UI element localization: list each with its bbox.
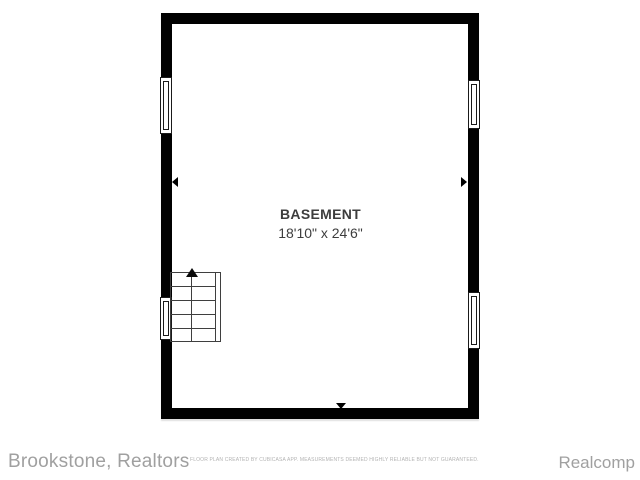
- window-pane: [163, 301, 169, 336]
- wall-marker-bottom-icon: [336, 403, 346, 409]
- window-pane: [471, 296, 477, 345]
- stair-rail-line: [215, 273, 216, 341]
- stair-step: [171, 286, 215, 287]
- footer-bar: Brookstone, Realtors FLOOR PLAN CREATED …: [0, 440, 640, 480]
- brand-text: Brookstone, Realtors: [8, 451, 189, 473]
- room-dimensions: 18'10" x 24'6": [172, 225, 469, 241]
- window-pane: [471, 84, 477, 125]
- floor-plan-canvas: BASEMENT 18'10" x 24'6" Brookstone, Real…: [0, 0, 640, 480]
- staircase: [170, 272, 221, 342]
- room-label-block: BASEMENT 18'10" x 24'6": [172, 206, 469, 241]
- disclaimer-text: FLOOR PLAN CREATED BY CUBICASA APP. MEAS…: [190, 457, 479, 463]
- window-icon: [468, 80, 480, 129]
- stairs-up-arrow-icon: [186, 268, 198, 277]
- wall-marker-top-icon: [336, 14, 346, 20]
- window-pane: [163, 81, 169, 130]
- wall-marker-right-icon: [461, 177, 467, 187]
- attribution-text: Realcomp: [558, 453, 635, 473]
- stair-step: [171, 300, 215, 301]
- window-icon: [468, 292, 480, 349]
- stair-step: [171, 328, 215, 329]
- room-name: BASEMENT: [172, 206, 469, 222]
- stair-step: [171, 314, 215, 315]
- stair-divider-line: [191, 273, 192, 341]
- window-icon: [160, 77, 172, 134]
- wall-marker-left-icon: [172, 177, 178, 187]
